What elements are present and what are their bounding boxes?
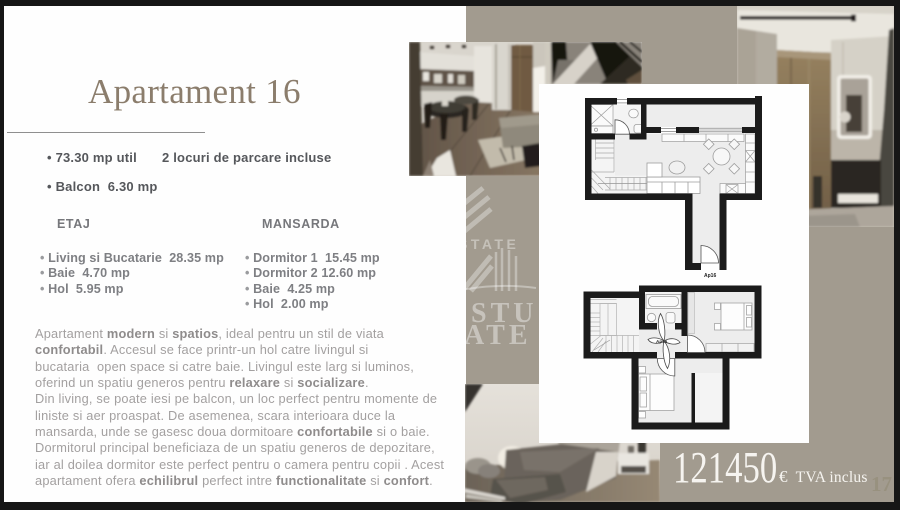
svg-text:Ap16: Ap16: [656, 339, 668, 344]
svg-text:STATE: STATE: [466, 236, 519, 252]
svg-text:Ap16: Ap16: [704, 273, 716, 279]
svg-text:ATE: ATE: [466, 320, 532, 350]
